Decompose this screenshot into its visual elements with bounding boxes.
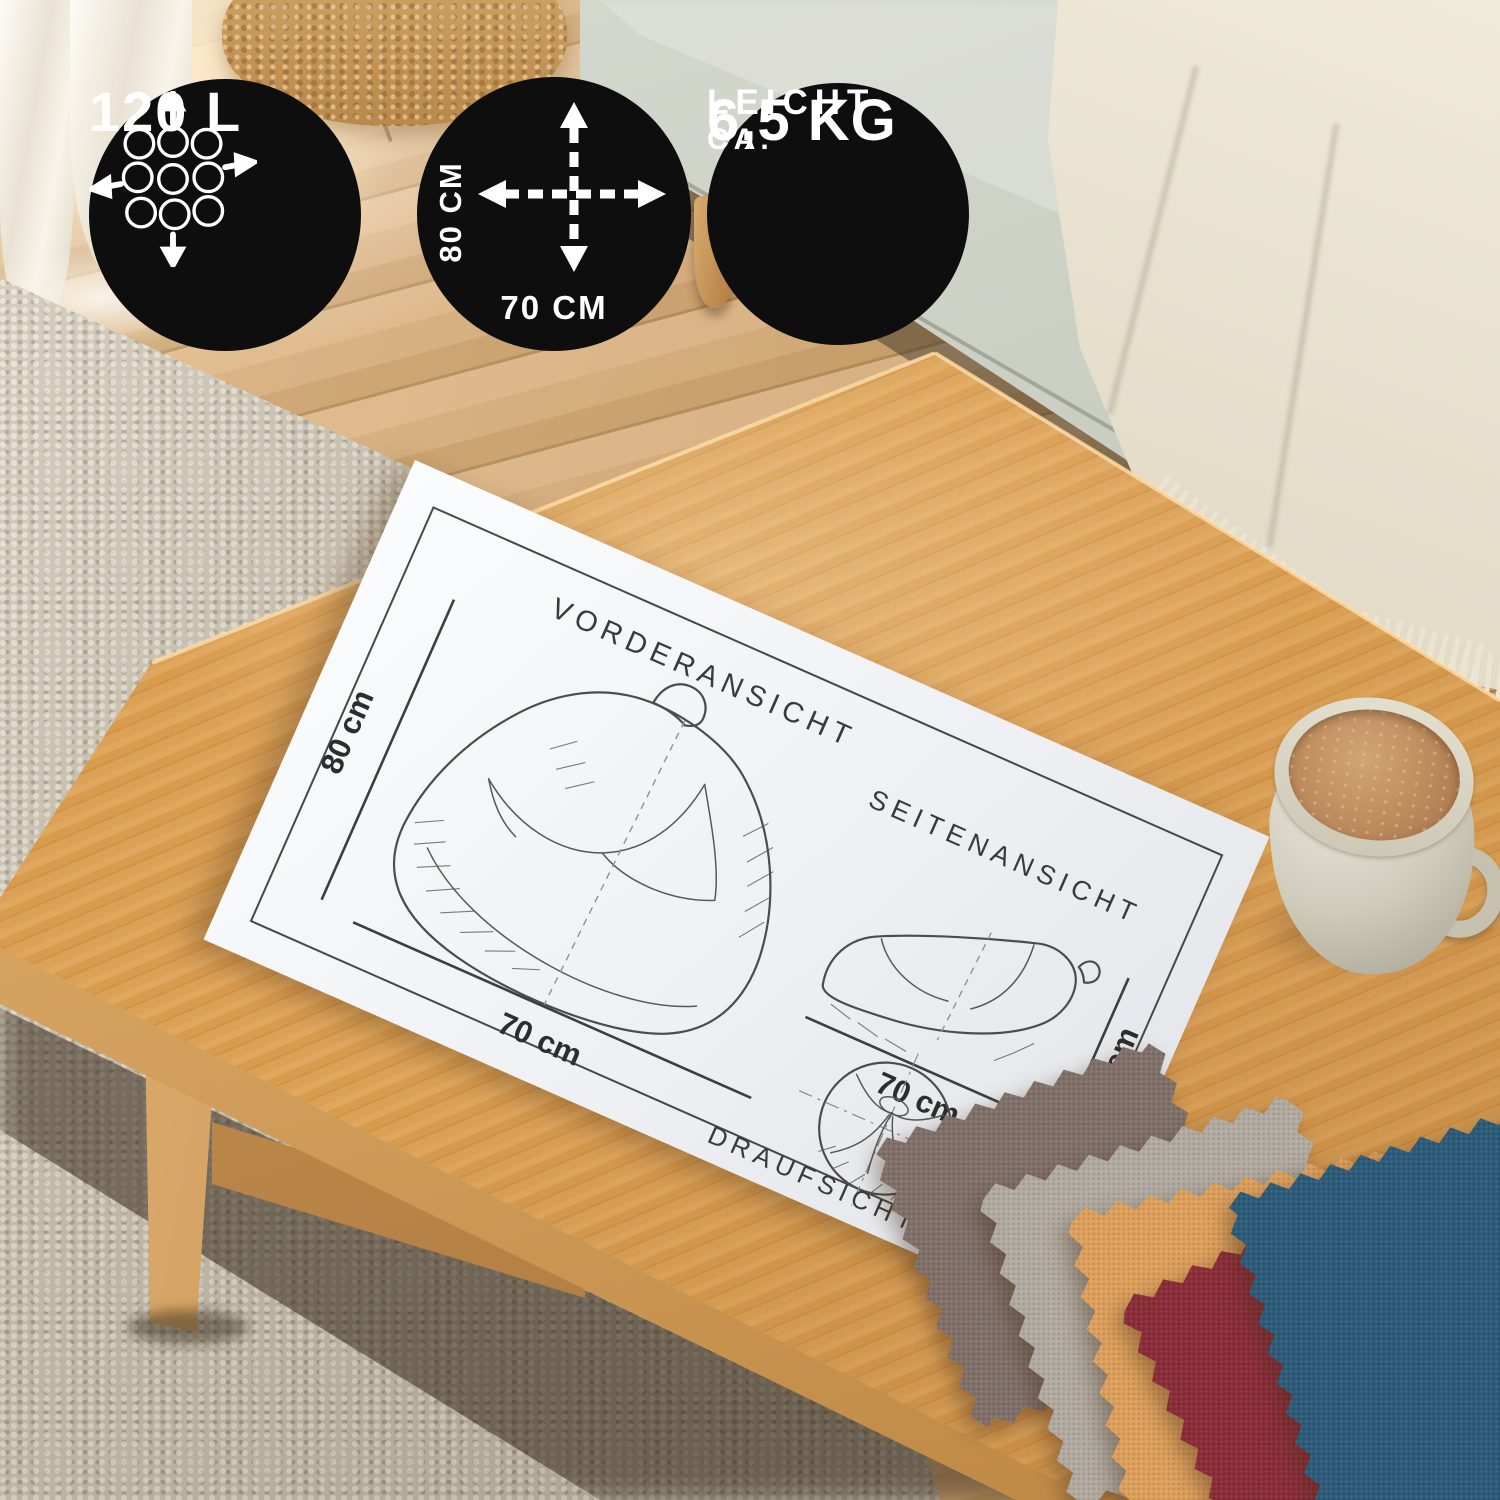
weight-suffix: LEICHT [707, 83, 875, 123]
height-label: 80 CM [433, 148, 469, 276]
volume-label: 120 L [89, 79, 242, 144]
width-label: 70 CM [417, 289, 691, 327]
badge-weight: CA. 6,5 KG LEICHT [707, 83, 969, 345]
badge-volume: 120 L [89, 79, 361, 351]
product-photo-scene: VORDERANSICHT 80 cm 70 cm SEITENANSICHT [0, 0, 1500, 1500]
badge-dimensions: 80 CM 70 CM [417, 77, 691, 351]
